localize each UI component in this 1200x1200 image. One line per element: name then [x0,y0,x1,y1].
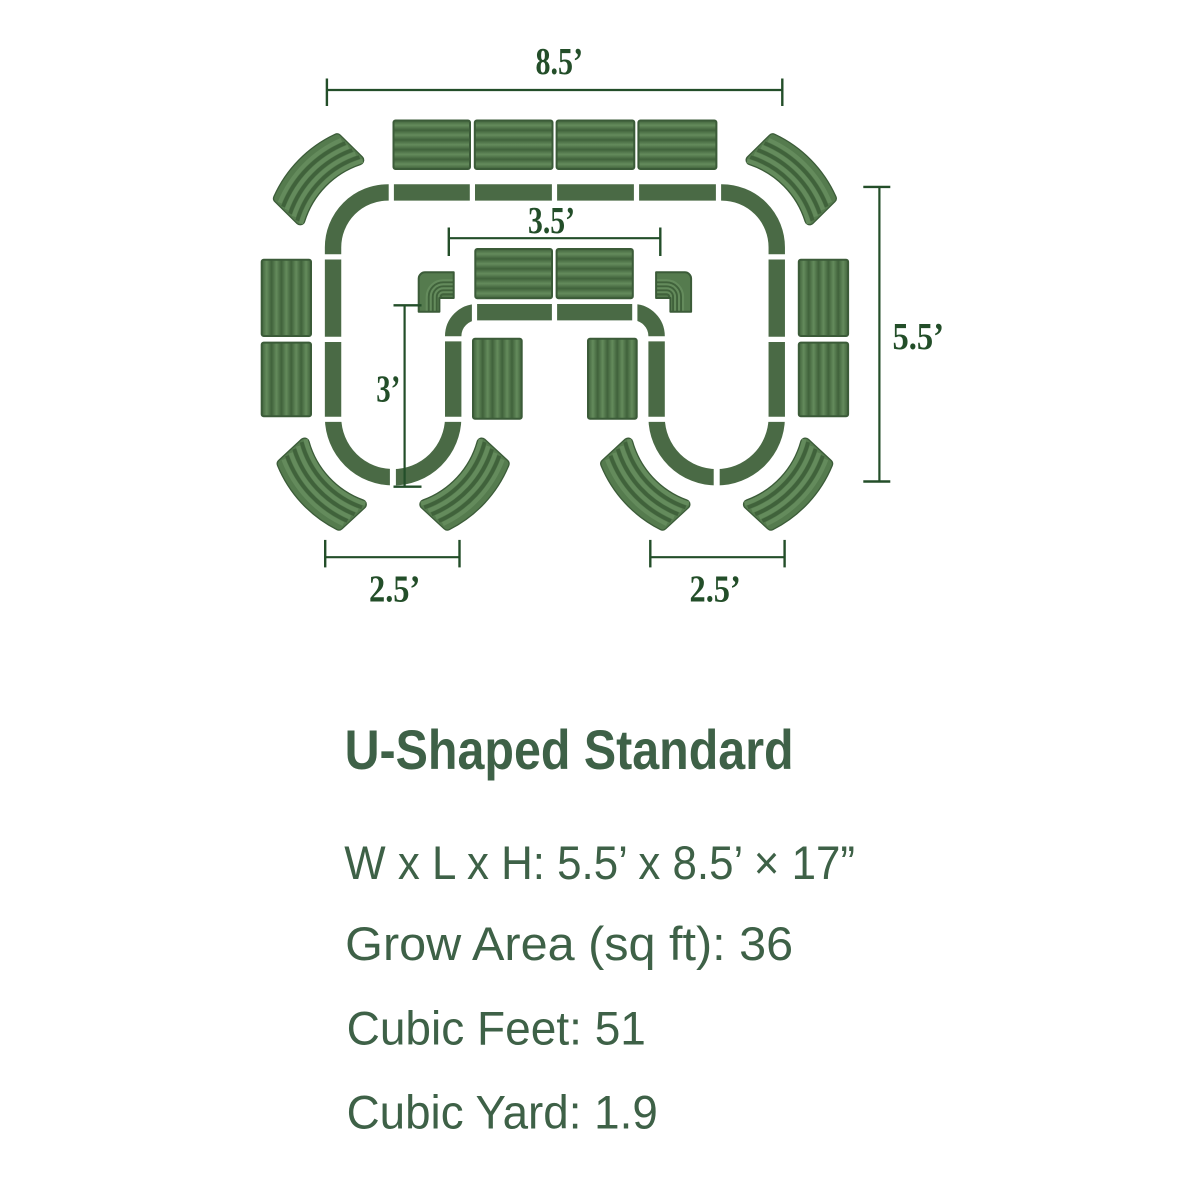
svg-text:Cubic Yard: 1.9: Cubic Yard: 1.9 [347,1087,658,1140]
svg-text:2.5’: 2.5’ [369,568,420,610]
svg-text:2.5’: 2.5’ [690,568,741,610]
svg-text:3.5’: 3.5’ [528,200,575,242]
svg-text:W x L x H: 5.5’ x 8.5’ × 17”: W x L x H: 5.5’ x 8.5’ × 17” [344,837,855,890]
svg-text:Grow Area (sq ft): 36: Grow Area (sq ft): 36 [345,918,793,971]
svg-text:Cubic Feet: 51: Cubic Feet: 51 [347,1003,646,1056]
svg-text:8.5’: 8.5’ [536,41,584,83]
svg-text:U-Shaped Standard: U-Shaped Standard [345,719,794,781]
svg-text:3’: 3’ [376,369,400,411]
svg-text:5.5’: 5.5’ [893,316,945,358]
